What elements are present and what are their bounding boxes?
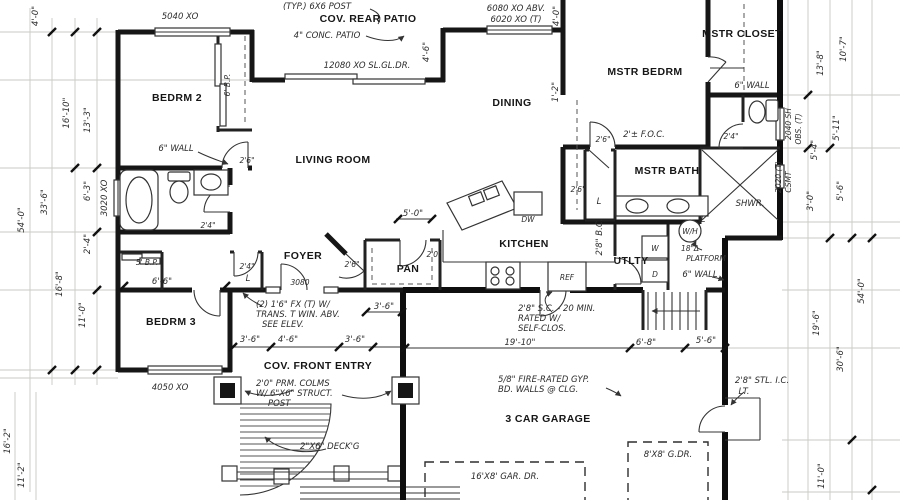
room-label-mstr-bath: MSTR BATH bbox=[635, 165, 700, 177]
label-linen-foyer: L bbox=[246, 274, 251, 284]
room-label-front-entry: COV. FRONT ENTRY bbox=[264, 360, 372, 372]
note-steel-door-2: LT. bbox=[738, 387, 749, 397]
door-label-26-linen: 2'6" bbox=[570, 185, 585, 194]
note-sc-2: RATED W/ bbox=[518, 314, 561, 324]
door-label-bypass6: 6' B.P. bbox=[223, 74, 232, 97]
note-sc-3: SELF-CLOS. bbox=[518, 324, 566, 334]
extension-lines bbox=[0, 0, 900, 500]
hall-bath-toilet bbox=[168, 172, 190, 203]
dim-entry-4-6: 4'-6" bbox=[278, 335, 298, 345]
note-trans-1: (2) 1'6" FX (T) W/ bbox=[256, 300, 331, 310]
dim-patio-4-6: 4'-6" bbox=[422, 42, 432, 62]
door-label-26-foyer: 2'6" bbox=[344, 260, 359, 269]
dim-right-5-6: 5'-6" bbox=[836, 181, 846, 201]
room-label-garage: 3 CAR GARAGE bbox=[505, 413, 590, 425]
note-trans-2: TRANS. T WIN. ABV. bbox=[256, 310, 340, 320]
note-wall6-bath: 6" WALL bbox=[158, 144, 194, 154]
note-colms-3: POST bbox=[268, 399, 291, 409]
room-label-kitchen: KITCHEN bbox=[499, 238, 548, 250]
window-label-4050: 4050 XO bbox=[152, 383, 189, 393]
room-label-rear-patio: COV. REAR PATIO bbox=[320, 13, 417, 25]
stairs bbox=[648, 292, 700, 330]
window-label-dining-t: 6020 XO (T) bbox=[490, 15, 541, 25]
note-colms-1: 2'0" PRM. COLMS bbox=[256, 379, 330, 389]
note-colms-2: W/ 6"X6" STRUCT. bbox=[256, 389, 333, 399]
room-label-utility: UTLTY bbox=[613, 255, 648, 267]
room-label-foyer: FOYER bbox=[284, 250, 322, 262]
note-platform-2: PLATFORM bbox=[686, 254, 726, 263]
dim-right-54-0: 54'-0" bbox=[857, 278, 867, 304]
window-label-3020: 3020 XO bbox=[100, 179, 110, 216]
note-decking: 2"X6" DECK'G bbox=[300, 442, 360, 452]
master-vanity bbox=[616, 196, 708, 216]
window-label-2020-2: CSMT bbox=[784, 170, 793, 193]
room-label-bedrm2: BEDRM 2 bbox=[152, 92, 202, 104]
door-label-bypass5: 5' B.P. bbox=[136, 258, 159, 267]
shower-stall bbox=[702, 150, 778, 220]
room-label-mstr-bedrm: MSTR BEDRM bbox=[607, 66, 682, 78]
note-foc: 2'± F.O.C. bbox=[623, 130, 665, 140]
note-garage-door16: 16'X8' GAR. DR. bbox=[471, 472, 539, 482]
dim-bottom-left-11-2: 11'-2" bbox=[17, 462, 27, 488]
bathtub bbox=[120, 170, 158, 230]
note-typ-post: (TYP.) 6X6 POST bbox=[283, 2, 352, 12]
label-refrigerator: REF bbox=[560, 273, 575, 282]
dim-dining-4-0: 4'-0" bbox=[552, 6, 562, 26]
room-label-mstr-closet: MSTR CLOSET bbox=[702, 28, 782, 40]
note-fire-2: BD. WALLS @ CLG. bbox=[498, 385, 578, 395]
note-conc-patio: 4" CONC. PATIO bbox=[294, 31, 361, 41]
floor-plan-sheet: BEDRM 2 BEDRM 3 LIVING ROOM DINING KITCH… bbox=[0, 0, 900, 500]
room-label-bedrm3: BEDRM 3 bbox=[146, 316, 196, 328]
dim-left-11-0: 11'-0" bbox=[78, 302, 88, 328]
door-label-26-bedrm2: 2'6" bbox=[239, 156, 254, 165]
dim-garage-19-10: 19'-10" bbox=[505, 338, 536, 348]
dim-left-13-3: 13'-3" bbox=[83, 107, 93, 133]
dim-kitchen-5-0: 5'-0" bbox=[403, 209, 423, 219]
window-label-2040-2: OBS. (T) bbox=[794, 113, 803, 144]
room-label-dining: DINING bbox=[492, 97, 531, 109]
dim-garage-5-6: 5'-6" bbox=[696, 336, 716, 346]
dishwasher-box bbox=[514, 192, 542, 215]
dim-dining-1-2: 1'-2" bbox=[551, 82, 561, 102]
dim-mid-3-6: 3'-6" bbox=[374, 302, 394, 312]
dim-right-10-7: 10'-7" bbox=[839, 36, 849, 62]
door-label-24-wc: 2'4" bbox=[723, 132, 738, 141]
window-label-slider: 12080 XO SL.GL.DR. bbox=[324, 61, 411, 71]
label-dishwasher: DW bbox=[521, 215, 535, 224]
dim-left-6-3: 6'-3" bbox=[83, 181, 93, 201]
dim-left-16-10: 16'-10" bbox=[62, 97, 72, 128]
range bbox=[486, 262, 520, 289]
water-closet-toilet bbox=[749, 100, 778, 123]
dim-right-5-4: 5'-4" bbox=[810, 140, 820, 160]
dim-entry-3-6-b: 3'-6" bbox=[345, 335, 365, 345]
dim-garage-6-8: 6'-8" bbox=[636, 338, 656, 348]
note-wall6-utility: 6" WALL bbox=[682, 270, 718, 280]
window-label-2040-1: 2040 SH bbox=[784, 108, 793, 140]
note-trans-3: SEE ELEV. bbox=[262, 320, 304, 330]
dim-bottom-left-16-2: 16'-2" bbox=[3, 428, 13, 454]
dim-left-33-6: 33'-6" bbox=[40, 189, 50, 215]
note-opening-28: 2'8" B.C. bbox=[595, 219, 605, 256]
window-label-dining-abv: 6080 XO ABV. bbox=[487, 4, 545, 14]
dim-right-30-6: 30'-6" bbox=[836, 346, 846, 372]
dim-right-11-0: 11'-0" bbox=[817, 463, 827, 489]
dim-left-2-4: 2'-4" bbox=[83, 234, 93, 254]
label-water-heater: W/H bbox=[682, 227, 698, 236]
note-steel-door-1: 2'8" STL. I.C. bbox=[735, 376, 789, 386]
room-label-pantry: PAN bbox=[397, 263, 420, 275]
door-label-26-mbath: 2'6" bbox=[595, 135, 610, 144]
note-sc-1: 2'8" S.C. - 20 MIN. bbox=[518, 304, 595, 314]
note-platform-1: 18"Δ bbox=[681, 244, 699, 253]
window-label-5040: 5040 XO bbox=[162, 12, 199, 22]
kitchen-island bbox=[447, 181, 517, 230]
floor-plan-drawing: BEDRM 2 BEDRM 3 LIVING ROOM DINING KITCH… bbox=[0, 0, 900, 500]
door-label-front: 3080 bbox=[290, 278, 309, 287]
door-label-20-pantry: 2'0" bbox=[426, 250, 441, 259]
dim-right-19-6: 19'-6" bbox=[812, 310, 822, 336]
label-linen-vanity: L bbox=[701, 215, 706, 225]
label-washer: W bbox=[651, 244, 659, 253]
label-dryer: D bbox=[652, 270, 658, 279]
window-label-2020-1: 2020 (T) bbox=[774, 161, 783, 193]
dim-right-5-11: 5'-11" bbox=[832, 115, 842, 141]
room-label-living: LIVING ROOM bbox=[296, 154, 371, 166]
note-wall6-closet: 6" WALL bbox=[734, 81, 770, 91]
dim-left-4-0: 4'-0" bbox=[31, 6, 41, 26]
dim-right-3-0: 3'-0" bbox=[806, 191, 816, 211]
left-aligned-notes: (2) 1'6" FX (T) W/ TRANS. T WIN. ABV. SE… bbox=[256, 300, 595, 452]
label-linen-hall: L bbox=[597, 197, 602, 207]
note-fire-1: 5/8" FIRE-RATED GYP. bbox=[498, 375, 589, 385]
label-shower: SHWR. bbox=[736, 199, 765, 209]
door-label-24-closet: 2'4" bbox=[239, 262, 254, 271]
note-garage-door8: 8'X8' G.DR. bbox=[644, 450, 692, 460]
hall-bath-sink bbox=[194, 170, 228, 195]
dim-left-16-8: 16'-8" bbox=[55, 271, 65, 297]
dim-right-13-8: 13'-8" bbox=[816, 50, 826, 76]
dim-left-54-0: 54'-0" bbox=[17, 207, 27, 233]
dim-entry-3-6-a: 3'-6" bbox=[240, 335, 260, 345]
dim-hall-6-6: 6'-6" bbox=[152, 277, 172, 287]
door-label-24-bath: 2'4" bbox=[200, 221, 215, 230]
